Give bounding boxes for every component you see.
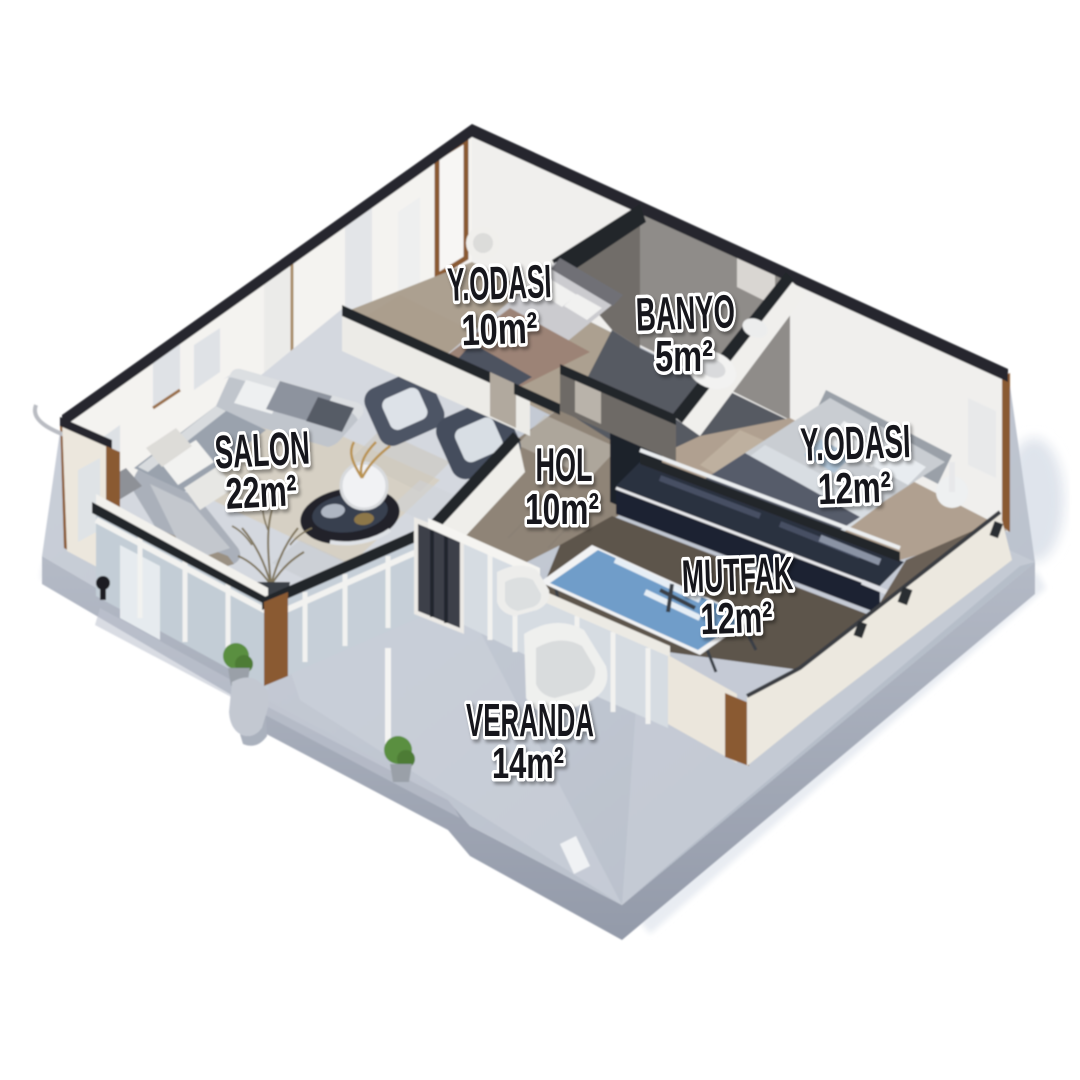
svg-text:12m²: 12m²	[700, 593, 774, 644]
svg-text:10m²: 10m²	[461, 304, 539, 356]
svg-text:12m²: 12m²	[817, 463, 892, 515]
svg-text:Y.ODASI: Y.ODASI	[447, 254, 553, 311]
svg-text:10m²: 10m²	[525, 485, 599, 534]
svg-text:5m²: 5m²	[655, 332, 713, 381]
svg-text:Y.ODASI: Y.ODASI	[800, 414, 912, 471]
svg-text:HOL: HOL	[536, 438, 593, 491]
svg-text:14m²: 14m²	[492, 739, 564, 788]
svg-text:22m²: 22m²	[225, 466, 298, 519]
